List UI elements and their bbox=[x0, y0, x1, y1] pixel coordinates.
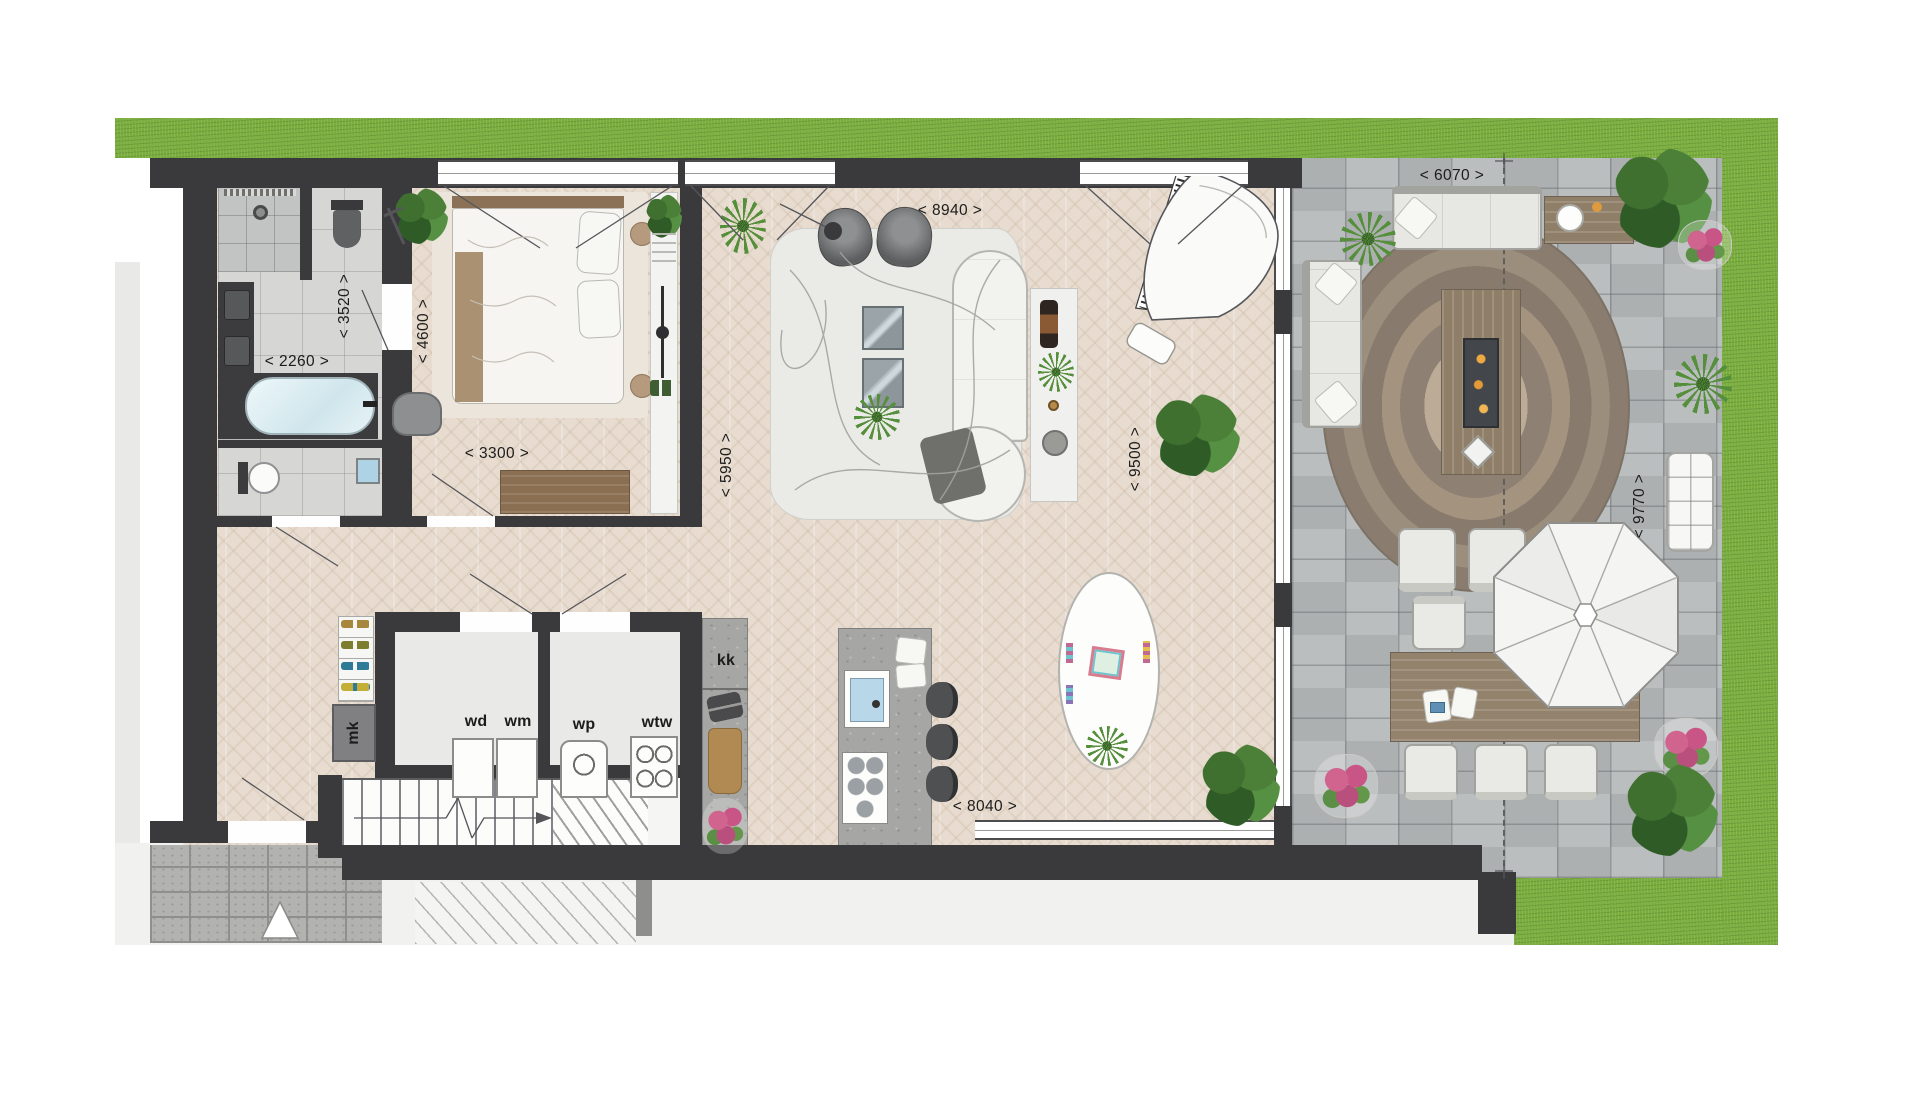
sofa-body bbox=[952, 250, 1028, 442]
terrace-planter-sw bbox=[1314, 754, 1378, 818]
dim-living-right: < 9500 > bbox=[1127, 427, 1145, 491]
terrace-sofa-west bbox=[1302, 260, 1362, 428]
parasol bbox=[1481, 510, 1691, 720]
terrace-planter-ne bbox=[1678, 220, 1732, 270]
console-palm bbox=[1038, 352, 1074, 392]
facade-pier-3 bbox=[1274, 806, 1292, 858]
sofa-pillow bbox=[1313, 379, 1358, 424]
dim-bathroom-depth: < 3520 > bbox=[336, 274, 354, 338]
counter-flowers bbox=[702, 798, 748, 854]
door-utility-b bbox=[558, 612, 632, 632]
living-monstera bbox=[1152, 394, 1240, 476]
table-notebook bbox=[1430, 702, 1445, 713]
bar-stool-2 bbox=[926, 724, 958, 760]
side-table-fruit bbox=[1592, 202, 1602, 212]
dining-deco-2 bbox=[1143, 641, 1150, 663]
wall-bath-wc bbox=[218, 440, 412, 448]
toilet-wc-tank bbox=[238, 462, 248, 494]
facade-pier-2 bbox=[1274, 583, 1292, 627]
grass-bottom-right bbox=[1514, 878, 1722, 945]
bathtub bbox=[245, 377, 375, 435]
bedroom-plant bbox=[394, 188, 448, 244]
wardrobe bbox=[500, 470, 630, 514]
label-meter-closet: mk bbox=[345, 721, 363, 745]
wall-terrace-step bbox=[1478, 872, 1516, 934]
terrace-dining-chair-n bbox=[1412, 596, 1466, 650]
wall-south-main bbox=[342, 845, 1482, 880]
dining-palm bbox=[1086, 726, 1128, 766]
console-ladder bbox=[652, 226, 676, 262]
heat-recovery-unit bbox=[630, 736, 678, 798]
bar-stool-1 bbox=[926, 682, 958, 718]
bathtub-faucet bbox=[363, 401, 377, 407]
shower-drain bbox=[253, 205, 268, 220]
sofa-pillow bbox=[1393, 195, 1438, 240]
table-paper-2 bbox=[1450, 686, 1479, 720]
floor-shower bbox=[218, 188, 300, 272]
toilet-wc-bowl bbox=[248, 462, 280, 494]
door-wc bbox=[270, 516, 342, 527]
dim-terrace-depth: < 9770 > bbox=[1631, 474, 1649, 538]
bedroom-chair bbox=[392, 392, 442, 436]
terrace-chair-1 bbox=[1398, 528, 1456, 592]
bed-pillow-1 bbox=[576, 211, 622, 276]
label-heat-pump: wp bbox=[573, 716, 596, 734]
bar-stool-3 bbox=[926, 766, 958, 802]
dim-living-left: < 5950 > bbox=[718, 433, 736, 497]
console-rail-knob bbox=[656, 326, 669, 339]
kitchen-counter-divider bbox=[702, 688, 748, 690]
sofa-pillow bbox=[1313, 261, 1358, 306]
washer-unit bbox=[496, 738, 538, 798]
island-faucet bbox=[872, 700, 880, 708]
bed-throw bbox=[455, 252, 483, 402]
shoes-row-2 bbox=[341, 641, 370, 649]
vanity-sink-1 bbox=[224, 290, 250, 320]
toilet-bathroom-bowl bbox=[333, 210, 361, 248]
terrace-dining-chair-s3 bbox=[1544, 744, 1598, 800]
living-palm-nw bbox=[720, 198, 766, 254]
console-candle bbox=[1048, 400, 1059, 411]
door-bedroom bbox=[425, 516, 497, 527]
coffee-table-1 bbox=[862, 306, 904, 350]
dining-deco-3 bbox=[1066, 685, 1073, 704]
dim-bedroom-depth: < 4600 > bbox=[415, 299, 433, 363]
wall-shower-stub bbox=[300, 188, 312, 280]
living-monstera-corner bbox=[1200, 744, 1280, 826]
terrace-dining-chair-s2 bbox=[1474, 744, 1528, 800]
label-dryer: wd bbox=[465, 713, 488, 731]
wall-outer-left bbox=[183, 158, 217, 843]
porch-wall-stub bbox=[636, 880, 652, 936]
dining-deco-1 bbox=[1066, 643, 1073, 663]
dim-terrace-width: < 6070 > bbox=[1420, 167, 1484, 185]
console-speaker bbox=[1040, 300, 1058, 348]
terrace-palm-e bbox=[1674, 354, 1732, 414]
vanity-sink-2 bbox=[224, 336, 250, 366]
console-bowl bbox=[1042, 430, 1068, 456]
floor-plan: < 8940 > < 6070 > < 3520 > < 2260 > < 46… bbox=[0, 0, 1920, 1097]
shoes-row-3 bbox=[341, 662, 370, 670]
window-bedroom bbox=[438, 160, 678, 186]
label-heat-recovery: wtw bbox=[642, 714, 673, 732]
shower-channel bbox=[224, 189, 296, 196]
dining-placemat bbox=[1088, 646, 1125, 680]
label-tall-cabinet: kk bbox=[717, 652, 735, 670]
terrace-palm-nw bbox=[1340, 212, 1396, 266]
side-table-tray bbox=[1556, 204, 1584, 232]
window-living-west bbox=[685, 160, 835, 186]
coffee-table-palm bbox=[854, 394, 900, 440]
dim-sliding-door: < 8040 > bbox=[953, 798, 1017, 816]
island-cloth-1 bbox=[895, 636, 928, 665]
terrace-dining-chair-s1 bbox=[1404, 744, 1458, 800]
sun-lounger bbox=[1666, 452, 1714, 552]
wc-basin bbox=[356, 458, 380, 484]
fire-insert bbox=[1463, 338, 1499, 428]
wall-stairs-west bbox=[318, 775, 342, 858]
front-door bbox=[226, 821, 308, 843]
bed-headboard bbox=[452, 196, 624, 208]
toilet-bathroom bbox=[331, 200, 363, 210]
wall-utility-west bbox=[375, 612, 395, 765]
wall-utility-mid bbox=[538, 632, 550, 765]
entrance-porch bbox=[415, 882, 636, 944]
dim-living-width: < 8940 > bbox=[918, 202, 982, 220]
heat-pump-unit bbox=[560, 740, 608, 798]
grand-piano bbox=[1112, 176, 1312, 391]
island-sink bbox=[850, 678, 884, 722]
wall-bedroom-living bbox=[680, 158, 702, 527]
shoes-row-4 bbox=[341, 683, 370, 691]
dim-bedroom-width: < 3300 > bbox=[465, 445, 529, 463]
island-hob bbox=[842, 752, 888, 824]
cutting-board bbox=[708, 728, 742, 794]
island-cloth-2 bbox=[895, 663, 927, 690]
door-bathroom bbox=[382, 282, 412, 352]
bed-pillow-2 bbox=[577, 279, 622, 339]
door-utility-a bbox=[458, 612, 534, 632]
wall-kitchen bbox=[680, 612, 702, 858]
dim-bathroom-width: < 2260 > bbox=[265, 353, 329, 371]
console-shoes bbox=[650, 380, 674, 396]
shoes-row-1 bbox=[341, 620, 370, 628]
terrace-sofa-north bbox=[1392, 186, 1542, 250]
label-washer: wm bbox=[504, 713, 531, 731]
terrace-monstera-se bbox=[1624, 764, 1718, 856]
grass-top bbox=[115, 118, 1778, 158]
dryer-unit bbox=[452, 738, 494, 798]
